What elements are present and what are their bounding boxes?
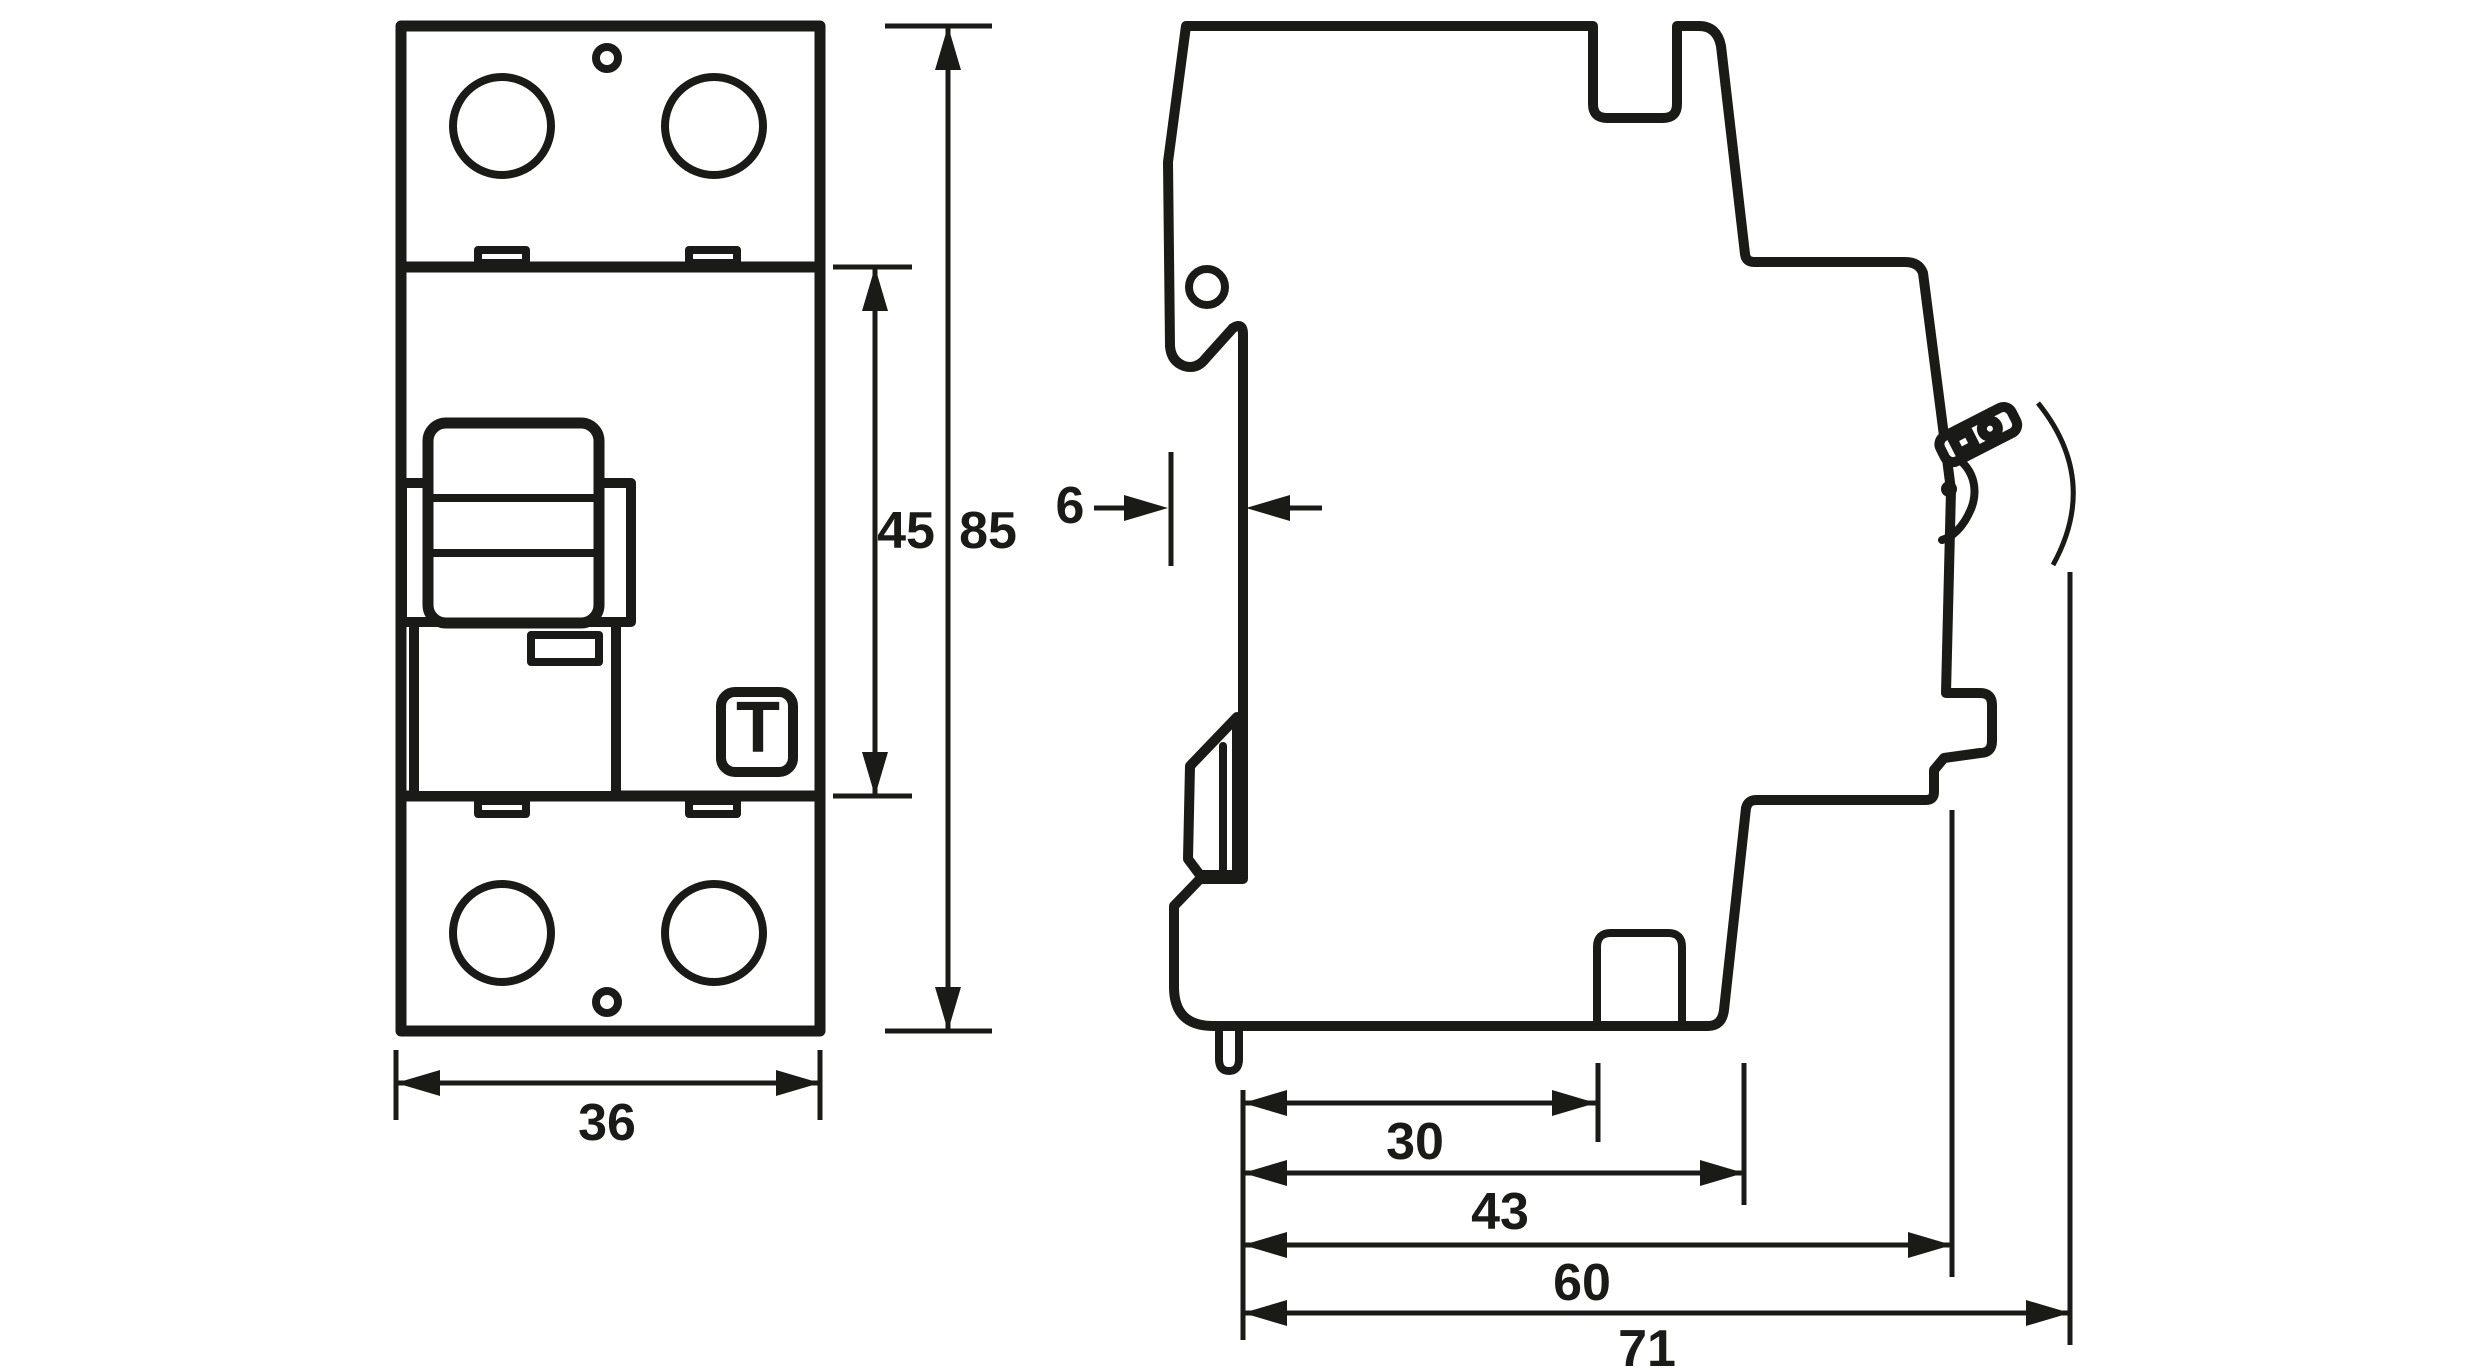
arrowhead-up (935, 26, 961, 70)
arrowhead-right (776, 1070, 820, 1096)
dim-label-6: 6 (1056, 477, 1085, 535)
lever-hole (1979, 418, 2001, 440)
side-profile-outline (1168, 26, 1992, 1026)
arrowhead-left (1243, 1300, 1287, 1326)
drawing-svg: T 36 45 85 (0, 0, 2480, 1372)
dimension-depth-43: 43 (1243, 1063, 1744, 1241)
dim-label-45: 45 (877, 502, 935, 560)
divider-tab (689, 250, 737, 263)
switch-lever (1936, 404, 2020, 465)
lever-pivot-dot (1941, 481, 1957, 497)
arrowhead-right (2026, 1300, 2070, 1326)
technical-dimension-drawing: T 36 45 85 (0, 0, 2480, 1372)
arrowhead-up (862, 267, 888, 311)
dimension-depth-30: 30 (1243, 1063, 1598, 1171)
arrowhead-right (1552, 1090, 1596, 1116)
arrowhead-down (935, 987, 961, 1031)
divider-tab (478, 250, 526, 263)
front-view: T (401, 26, 820, 1031)
rail-clip-slider (1188, 717, 1237, 875)
lever-travel-arc (2038, 403, 2073, 565)
arrowhead-right (1124, 495, 1168, 521)
dim-label-36: 36 (578, 1094, 636, 1152)
lever-slot (1952, 431, 1974, 453)
arrowhead-right (1908, 1232, 1952, 1258)
test-button-label: T (736, 688, 780, 768)
arrowhead-down (862, 752, 888, 796)
side-view (1168, 26, 2073, 1071)
dim-label-85: 85 (959, 502, 1017, 560)
switch-toggle (428, 423, 599, 623)
arrowhead-left (1243, 1232, 1287, 1258)
arrowhead-left (1243, 1090, 1287, 1116)
divider-tab (689, 801, 737, 814)
dimension-width-36: 36 (396, 1050, 820, 1152)
divider-tab (478, 801, 526, 814)
arrowhead-left (1243, 1160, 1287, 1186)
label-window (531, 635, 599, 662)
dim-label-30: 30 (1386, 1113, 1444, 1171)
bottom-pin (1219, 1032, 1239, 1071)
dim-label-60: 60 (1553, 1254, 1611, 1312)
arrowhead-right (1700, 1160, 1744, 1186)
lever-body (1936, 404, 2020, 465)
dimension-height-45: 45 (833, 267, 935, 796)
dim-label-43: 43 (1471, 1183, 1529, 1241)
arrowhead-left (396, 1070, 440, 1096)
dim-label-71: 71 (1618, 1320, 1676, 1372)
